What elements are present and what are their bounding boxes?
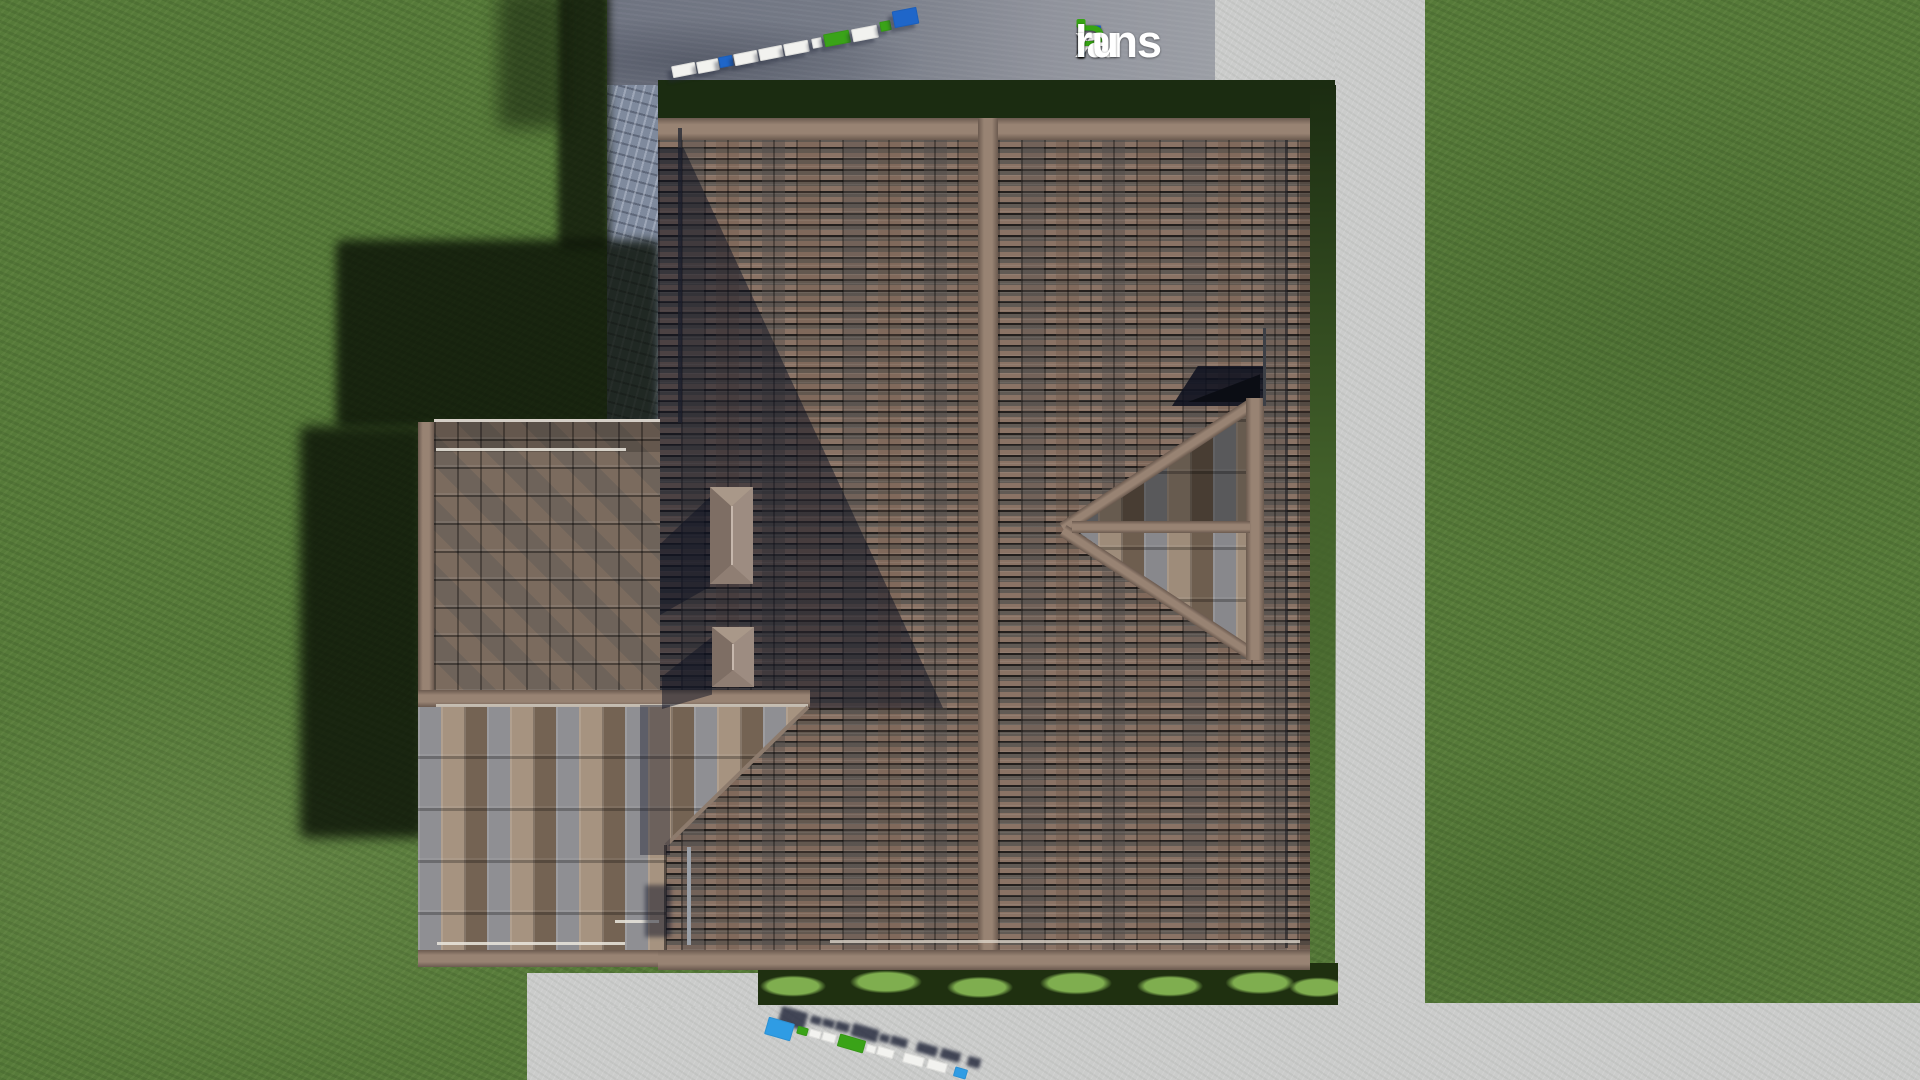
downpipe-shadow [645, 885, 671, 937]
render-scene: FixPlans.ru [0, 0, 1920, 1080]
chimney-shadow [640, 705, 670, 855]
logo-letter: ru [1075, 16, 1118, 68]
roof-eave-bar [658, 950, 1310, 970]
chimney-cap-ridge [731, 506, 733, 564]
wing-edge-line [434, 419, 660, 422]
concrete-path-right [1335, 0, 1425, 1005]
roof-ridge-center [978, 118, 998, 967]
roof-rake-shading [1300, 140, 1310, 950]
snow-guard [830, 940, 1300, 943]
dormer-ridge-mid [1072, 521, 1250, 533]
concrete-pavement-tab [527, 973, 762, 1007]
wing-eave-bar [418, 950, 668, 967]
downpipe [687, 847, 691, 945]
chimney-cap-ridge [732, 644, 734, 670]
concrete-pavement-bottom [527, 1003, 1920, 1080]
gutter-line [1285, 140, 1288, 948]
letter-block [811, 37, 823, 49]
snow-guard [436, 448, 626, 451]
snow-guard [437, 942, 625, 945]
chimney [712, 627, 754, 687]
letter-block [879, 20, 892, 32]
house-shadow-on-ground [498, 0, 564, 128]
house-shadow-on-ground [300, 426, 426, 838]
chimney [710, 487, 753, 584]
grass-band-east [1310, 85, 1336, 970]
house-shadow-on-ground [336, 240, 660, 428]
snow-guard [436, 704, 808, 707]
house-shadow-on-ground [558, 0, 610, 248]
wing-upper-slope [434, 422, 660, 693]
antenna [1263, 328, 1266, 406]
